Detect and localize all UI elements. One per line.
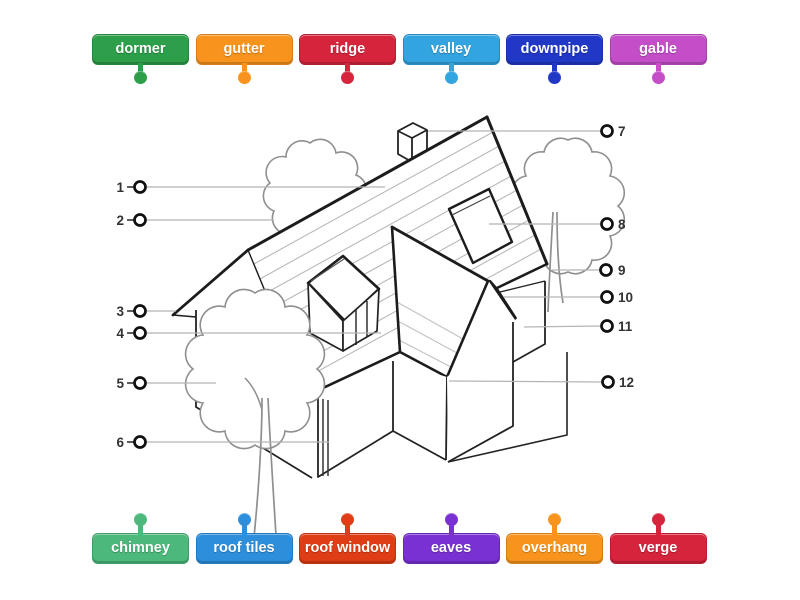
answer-marker-10[interactable] <box>602 292 613 303</box>
marker-number: 1 <box>116 180 124 195</box>
answer-marker-6[interactable] <box>135 437 146 448</box>
label-verge[interactable]: verge <box>610 533 707 564</box>
marker-number: 7 <box>618 124 626 139</box>
activity-stage: 1 2 3 4 5 6 7 8 9 10 11 12 dormer gutter… <box>0 0 800 600</box>
label-wrap: dormer <box>92 34 189 65</box>
label-eaves[interactable]: eaves <box>403 533 500 564</box>
marker-number: 12 <box>619 375 634 390</box>
label-roof-tiles[interactable]: roof tiles <box>196 533 293 564</box>
label-chimney[interactable]: chimney <box>92 533 189 564</box>
label-overhang[interactable]: overhang <box>506 533 603 564</box>
pin-stem <box>138 525 143 535</box>
answer-marker-11[interactable] <box>602 321 613 332</box>
label-wrap: downpipe <box>506 34 603 65</box>
pin-dot <box>652 513 665 526</box>
marker-number: 2 <box>116 213 124 228</box>
pin-dot <box>445 513 458 526</box>
marker-number: 11 <box>618 319 633 334</box>
answer-marker-4[interactable] <box>135 328 146 339</box>
pin-dot <box>548 513 561 526</box>
label-dormer[interactable]: dormer <box>92 34 189 65</box>
pin-dot <box>445 71 458 84</box>
pin-stem <box>242 525 247 535</box>
label-gable[interactable]: gable <box>610 34 707 65</box>
pin-dot <box>134 71 147 84</box>
marker-number: 4 <box>116 326 124 341</box>
answer-marker-2[interactable] <box>135 215 146 226</box>
marker-number: 10 <box>618 290 633 305</box>
pin-dot <box>652 71 665 84</box>
answer-marker-12[interactable] <box>603 377 614 388</box>
label-wrap: eaves <box>403 533 500 564</box>
marker-number: 6 <box>116 435 124 450</box>
pin-stem <box>345 525 350 535</box>
label-wrap: roof window <box>299 533 396 564</box>
label-valley[interactable]: valley <box>403 34 500 65</box>
bottom-label-row: chimney roof tiles roof window eaves ove… <box>92 533 707 564</box>
marker-number: 5 <box>116 376 124 391</box>
label-wrap: verge <box>610 533 707 564</box>
label-wrap: roof tiles <box>196 533 293 564</box>
pin-dot <box>341 71 354 84</box>
answer-marker-7[interactable] <box>602 126 613 137</box>
answer-marker-1[interactable] <box>135 182 146 193</box>
pin-dot <box>341 513 354 526</box>
pin-dot <box>134 513 147 526</box>
label-roof-window[interactable]: roof window <box>299 533 396 564</box>
pin-stem <box>656 525 661 535</box>
top-label-row: dormer gutter ridge valley downpipe gabl… <box>92 34 707 65</box>
pin-dot <box>238 71 251 84</box>
verge-return <box>173 315 196 317</box>
house-roof-diagram: 1 2 3 4 5 6 7 8 9 10 11 12 <box>0 0 800 600</box>
label-ridge[interactable]: ridge <box>299 34 396 65</box>
marker-number: 3 <box>116 304 124 319</box>
marker-number: 9 <box>618 263 626 278</box>
marker-number: 8 <box>618 217 626 232</box>
label-downpipe[interactable]: downpipe <box>506 34 603 65</box>
pin-stem <box>552 525 557 535</box>
answer-marker-5[interactable] <box>135 378 146 389</box>
label-wrap: valley <box>403 34 500 65</box>
answer-marker-8[interactable] <box>602 219 613 230</box>
answer-marker-9[interactable] <box>601 265 612 276</box>
pin-dot <box>238 513 251 526</box>
pin-dot <box>548 71 561 84</box>
marker-number-dashes <box>127 187 134 442</box>
label-wrap: chimney <box>92 533 189 564</box>
label-gutter[interactable]: gutter <box>196 34 293 65</box>
pin-stem <box>449 525 454 535</box>
foreground-tree-left <box>186 289 325 556</box>
label-wrap: overhang <box>506 533 603 564</box>
label-wrap: gutter <box>196 34 293 65</box>
answer-marker-3[interactable] <box>135 306 146 317</box>
label-wrap: gable <box>610 34 707 65</box>
label-wrap: ridge <box>299 34 396 65</box>
